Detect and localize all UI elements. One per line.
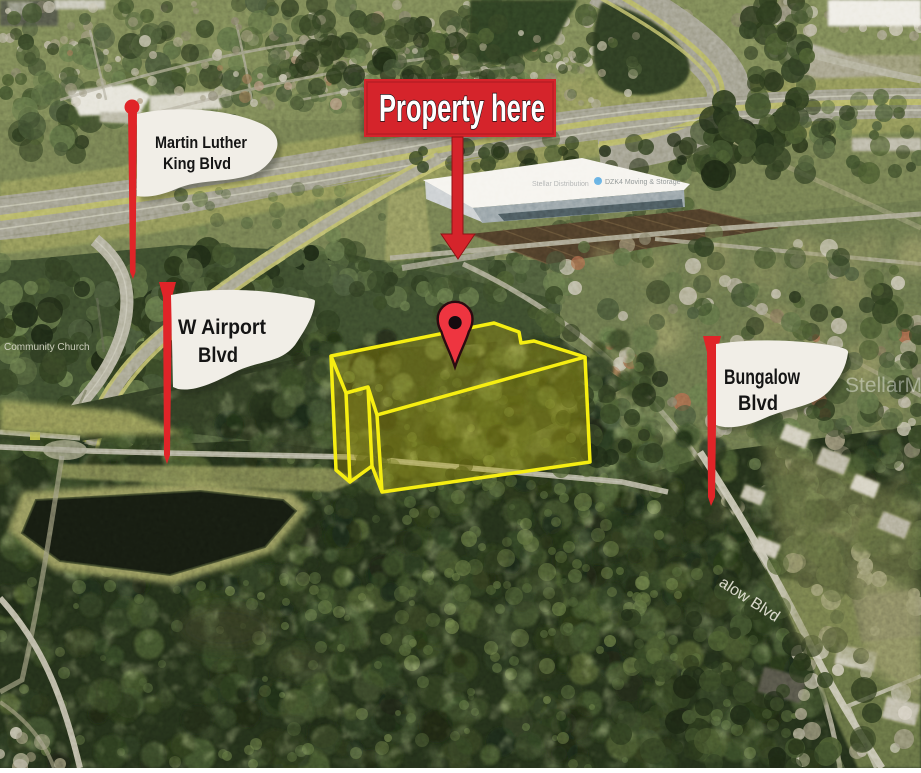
- svg-text:Property here: Property here: [379, 88, 545, 130]
- svg-text:Blvd: Blvd: [738, 392, 778, 415]
- svg-text:StellarMLS: StellarMLS: [845, 374, 921, 397]
- svg-text:W Airport: W Airport: [178, 316, 266, 339]
- svg-text:Martin Luther: Martin Luther: [155, 133, 247, 152]
- svg-text:King Blvd: King Blvd: [163, 154, 231, 173]
- svg-text:Bungalow: Bungalow: [724, 366, 801, 389]
- svg-text:Blvd: Blvd: [198, 344, 238, 367]
